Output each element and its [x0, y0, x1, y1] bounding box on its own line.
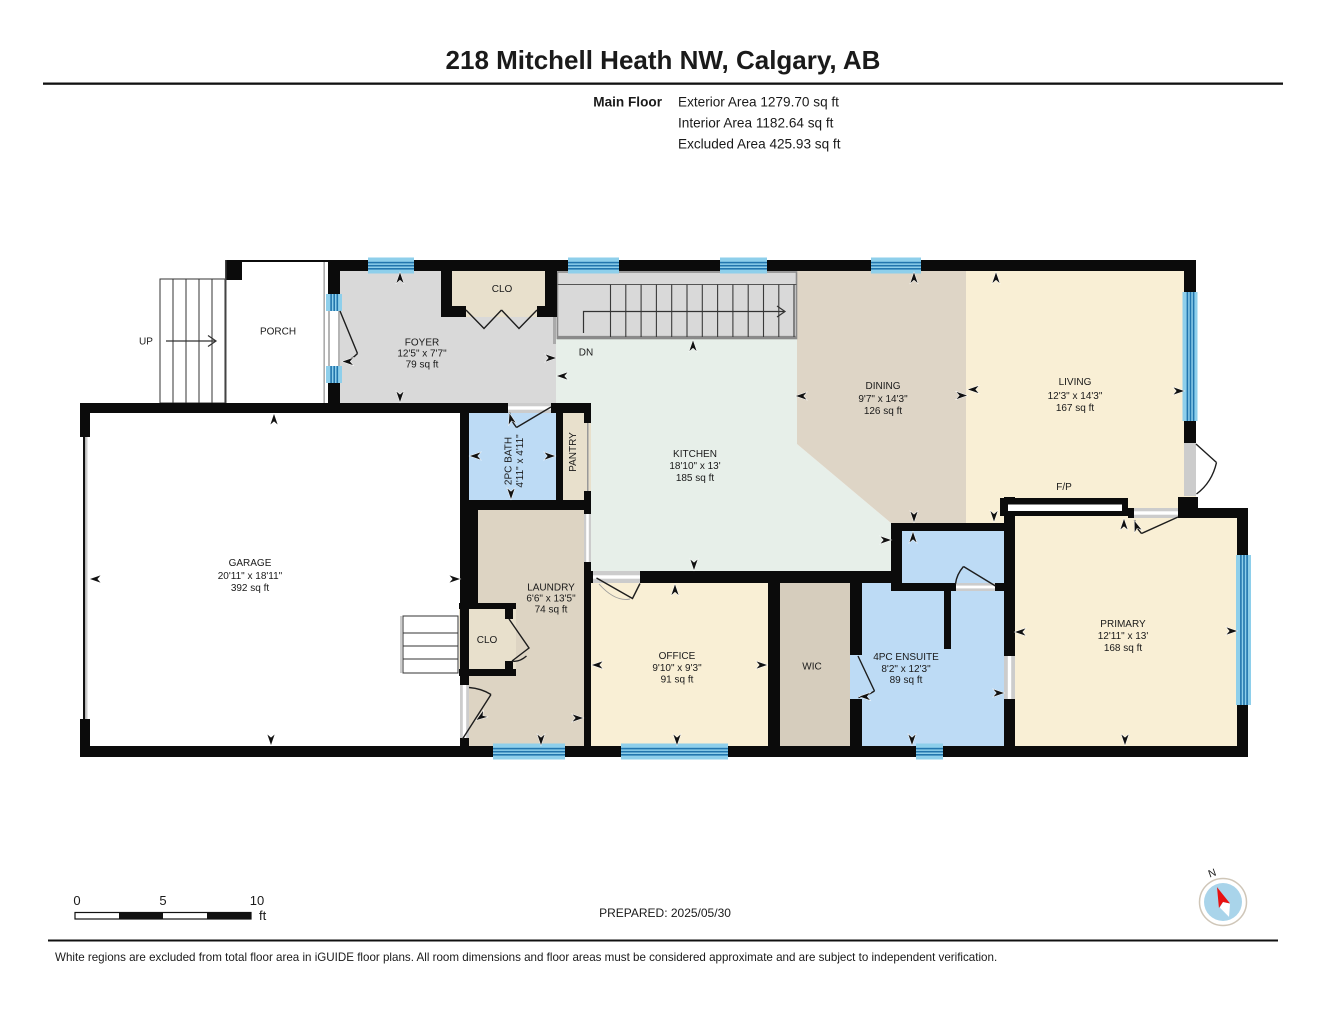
svg-text:PORCH: PORCH — [260, 327, 296, 338]
svg-text:LAUNDRY: LAUNDRY — [527, 583, 575, 594]
svg-text:12'5" x 7'7": 12'5" x 7'7" — [397, 349, 447, 360]
svg-text:20'11" x 18'11": 20'11" x 18'11" — [218, 571, 283, 582]
svg-text:CLO: CLO — [477, 635, 498, 646]
svg-text:White regions are excluded fro: White regions are excluded from total fl… — [55, 951, 997, 964]
svg-text:91 sq ft: 91 sq ft — [661, 675, 694, 686]
svg-text:126 sq ft: 126 sq ft — [864, 406, 903, 417]
svg-text:89 sq ft: 89 sq ft — [890, 675, 923, 686]
svg-text:DINING: DINING — [866, 381, 901, 392]
svg-text:10: 10 — [250, 893, 264, 908]
svg-text:Exterior Area 1279.70 sq ft: Exterior Area 1279.70 sq ft — [678, 95, 839, 110]
svg-text:79 sq ft: 79 sq ft — [406, 360, 439, 371]
svg-text:12'11" x 13': 12'11" x 13' — [1098, 631, 1149, 642]
svg-text:OFFICE: OFFICE — [659, 651, 696, 662]
svg-text:168 sq ft: 168 sq ft — [1104, 643, 1143, 654]
svg-text:Main Floor: Main Floor — [593, 95, 662, 110]
svg-text:2PC BATH: 2PC BATH — [504, 437, 515, 485]
svg-text:12'3" x 14'3": 12'3" x 14'3" — [1048, 391, 1103, 402]
svg-text:18'10" x 13': 18'10" x 13' — [669, 461, 720, 472]
svg-text:F/P: F/P — [1056, 482, 1072, 493]
svg-text:4PC ENSUITE: 4PC ENSUITE — [873, 652, 939, 663]
svg-text:4'11" x 4'11": 4'11" x 4'11" — [515, 434, 526, 488]
svg-text:LIVING: LIVING — [1059, 377, 1092, 388]
svg-text:PREPARED: 2025/05/30: PREPARED: 2025/05/30 — [599, 906, 731, 920]
svg-text:9'7" x 14'3": 9'7" x 14'3" — [858, 394, 908, 405]
svg-text:PRIMARY: PRIMARY — [1100, 619, 1146, 630]
svg-text:Excluded Area 425.93 sq ft: Excluded Area 425.93 sq ft — [678, 137, 841, 152]
svg-text:DN: DN — [579, 348, 593, 359]
svg-text:PANTRY: PANTRY — [568, 432, 579, 472]
svg-text:UP: UP — [139, 337, 153, 348]
svg-text:Interior Area 1182.64 sq ft: Interior Area 1182.64 sq ft — [678, 116, 834, 131]
svg-text:5: 5 — [159, 893, 166, 908]
svg-text:CLO: CLO — [492, 284, 513, 295]
svg-text:ft: ft — [259, 908, 267, 923]
svg-text:0: 0 — [73, 893, 80, 908]
svg-text:392 sq ft: 392 sq ft — [231, 583, 270, 594]
svg-text:74 sq ft: 74 sq ft — [535, 605, 568, 616]
svg-text:FOYER: FOYER — [405, 338, 439, 349]
svg-text:GARAGE: GARAGE — [229, 558, 272, 569]
svg-text:167 sq ft: 167 sq ft — [1056, 403, 1095, 414]
svg-text:185 sq ft: 185 sq ft — [676, 473, 715, 484]
svg-text:WIC: WIC — [802, 662, 821, 673]
svg-text:KITCHEN: KITCHEN — [673, 449, 717, 460]
svg-text:6'6" x 13'5": 6'6" x 13'5" — [526, 594, 576, 605]
svg-text:8'2" x 12'3": 8'2" x 12'3" — [881, 664, 931, 675]
svg-text:218 Mitchell Heath NW, Calgary: 218 Mitchell Heath NW, Calgary, AB — [446, 45, 881, 75]
svg-text:9'10" x 9'3": 9'10" x 9'3" — [652, 663, 702, 674]
